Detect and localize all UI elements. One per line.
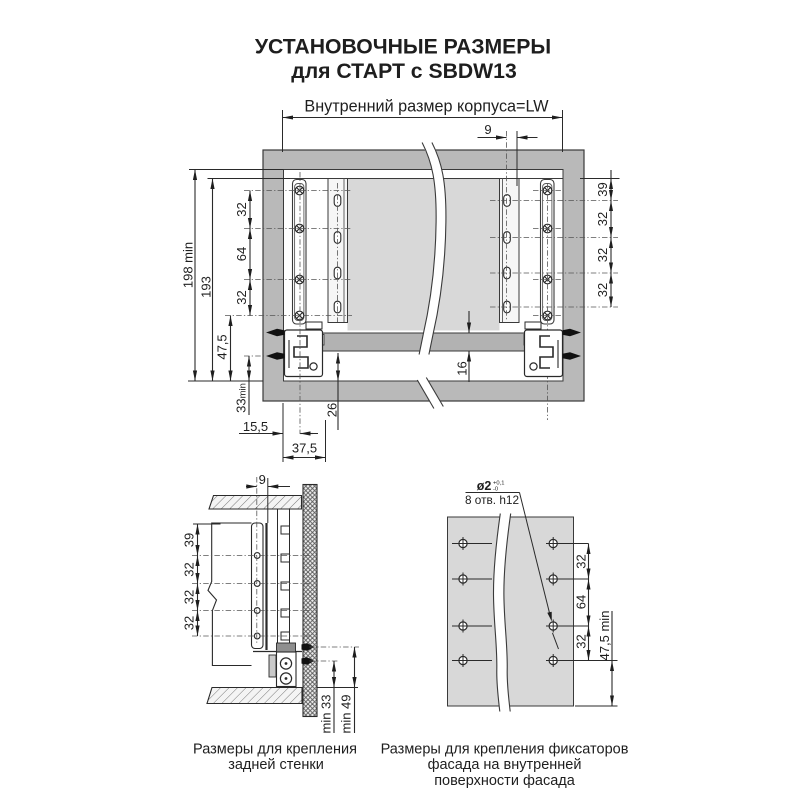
svg-text:32: 32 <box>574 554 589 568</box>
svg-text:47,5: 47,5 <box>215 334 230 359</box>
svg-text:УСТАНОВОЧНЫЕ РАЗМЕРЫ: УСТАНОВОЧНЫЕ РАЗМЕРЫ <box>255 36 551 59</box>
svg-text:9: 9 <box>259 472 266 487</box>
svg-text:47,5 min: 47,5 min <box>597 611 612 661</box>
svg-text:26: 26 <box>325 403 340 417</box>
svg-text:для СТАРТ с SBDW13: для СТАРТ с SBDW13 <box>291 60 517 83</box>
svg-text:39: 39 <box>595 182 610 196</box>
svg-text:8 отв. h12: 8 отв. h12 <box>465 493 519 507</box>
svg-text:min 33: min 33 <box>319 694 334 733</box>
svg-text:задней стенки: задней стенки <box>228 757 324 773</box>
svg-text:15,5: 15,5 <box>243 419 268 434</box>
svg-text:32: 32 <box>595 283 610 297</box>
svg-text:193: 193 <box>199 276 214 298</box>
svg-text:32: 32 <box>182 562 197 576</box>
svg-text:ø2: ø2 <box>477 479 492 493</box>
svg-text:37,5: 37,5 <box>292 441 317 456</box>
svg-text:16: 16 <box>455 361 470 375</box>
svg-text:64: 64 <box>574 595 589 609</box>
svg-text:32: 32 <box>182 616 197 630</box>
svg-text:32: 32 <box>574 634 589 648</box>
svg-text:198 min: 198 min <box>181 242 196 288</box>
svg-text:Внутренний размер корпуса=LW: Внутренний размер корпуса=LW <box>304 98 549 116</box>
svg-text:min 49: min 49 <box>339 694 354 733</box>
svg-text:39: 39 <box>182 533 197 547</box>
svg-text:9: 9 <box>484 122 491 137</box>
svg-text:32: 32 <box>234 290 249 304</box>
svg-text:32: 32 <box>182 590 197 604</box>
svg-text:поверхности фасада: поверхности фасада <box>434 773 576 789</box>
svg-text:32: 32 <box>595 248 610 262</box>
svg-text:64: 64 <box>234 247 249 261</box>
svg-text:фасада на внутренней: фасада на внутренней <box>428 757 582 773</box>
svg-text:Размеры для крепления фиксатор: Размеры для крепления фиксаторов <box>381 742 629 758</box>
svg-text:-0: -0 <box>493 487 498 493</box>
svg-text:Размеры для крепления: Размеры для крепления <box>193 742 357 758</box>
svg-text:32: 32 <box>234 202 249 216</box>
svg-text:32: 32 <box>595 212 610 226</box>
